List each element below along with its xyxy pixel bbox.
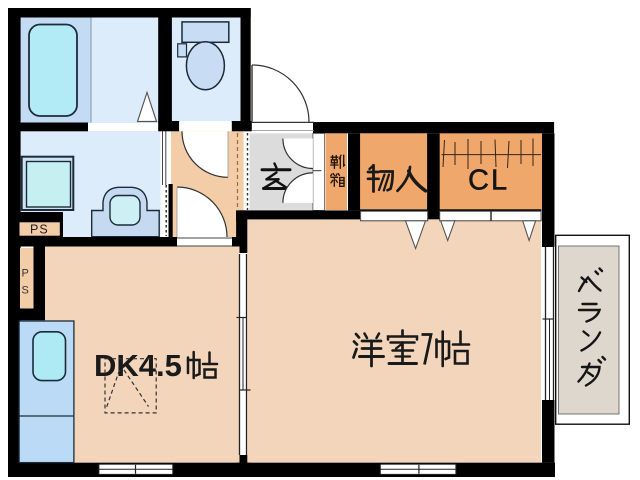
svg-text:S: S — [22, 285, 29, 297]
svg-text:PS: PS — [30, 223, 49, 237]
svg-text:DK4.5: DK4.5 — [94, 348, 182, 383]
svg-text:CL: CL — [468, 165, 509, 197]
svg-text:P: P — [22, 268, 29, 280]
